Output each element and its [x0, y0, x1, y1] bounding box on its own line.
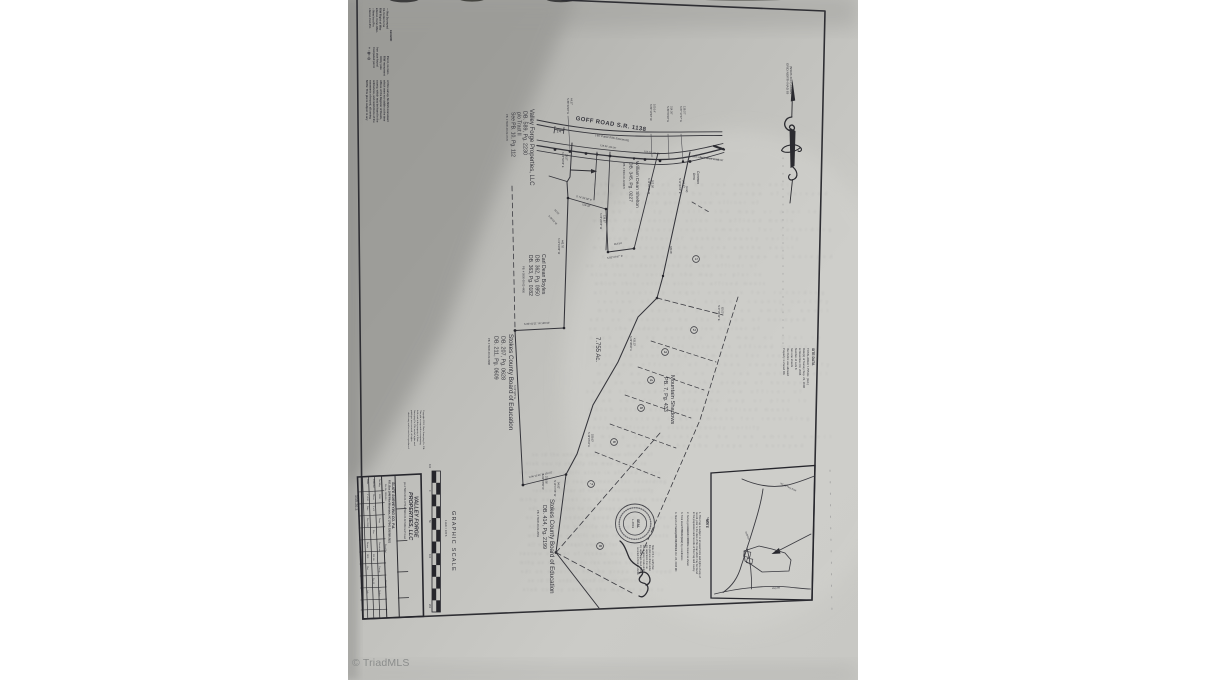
svg-text:P.O. Box 1648 Pilot Mountain,: P.O. Box 1648 Pilot Mountain, NC 27041 3…	[388, 480, 391, 544]
svg-text:of this survey. No NGS monumen: of this survey. No NGS monument	[386, 80, 390, 122]
svg-text:138.37': 138.37'	[683, 106, 687, 115]
svg-text:433.10': 433.10'	[633, 338, 636, 346]
svg-text:115-20-3: 115-20-3	[361, 479, 363, 488]
svg-text:my supervision from an: my supervision from an	[645, 545, 648, 569]
svg-text:CL Center Line: CL Center Line	[382, 8, 386, 28]
svg-text:PB. # 5900-00-02-2553: PB. # 5900-00-02-2553	[536, 510, 540, 538]
svg-text:GRID NORTH NAD 83: GRID NORTH NAD 83	[786, 63, 790, 95]
svg-text:LEGEND: LEGEND	[389, 30, 393, 41]
svg-text:Sauratown: Sauratown	[378, 542, 381, 553]
svg-text:94.92': 94.92'	[557, 482, 560, 489]
svg-text:Iron pipe found: Iron pipe found	[376, 47, 380, 67]
svg-text:S 87°17'07" E: S 87°17'07" E	[679, 106, 683, 122]
svg-text:100.14': 100.14'	[653, 104, 657, 113]
svg-text:579.67': 579.67'	[682, 180, 685, 189]
svg-text:DB. 363, Pg. 0182: DB. 363, Pg. 0182	[527, 255, 533, 296]
svg-text:202.06': 202.06'	[651, 180, 654, 189]
svg-text:mthg ae societ on he res emthe: mthg ae societ on he res emthe soeit	[520, 497, 671, 502]
svg-text:N 19°20'31" E: N 19°20'31" E	[587, 432, 590, 447]
svg-text:2008-114: 2008-114	[372, 479, 374, 488]
svg-text:1/15-20-3: 1/15-20-3	[354, 495, 358, 510]
svg-text:Copyright 2013, Slate Surveyin: Copyright 2013, Slate Surveying Co. P.A.	[422, 410, 425, 450]
svg-text:NOTE: This plat is subject to: NOTE: This plat is subject to any	[365, 80, 369, 121]
svg-text:oe rd the unders gned re iew o: oe rd the unders gned re iew officer of	[528, 578, 649, 583]
svg-text:Sheet: Sheet	[372, 494, 375, 500]
svg-text:Stokes County Board of Educati: Stokes County Board of Education	[507, 334, 514, 431]
svg-text:State of N.C. certify that: State of N.C. certify that	[651, 545, 654, 570]
svg-text:DB. 362, Pg. 0950: DB. 362, Pg. 0950	[534, 255, 540, 296]
svg-text:Property is Zoned RA: Property is Zoned RA	[782, 348, 786, 375]
svg-text:Hwy 89: Hwy 89	[772, 586, 781, 590]
svg-text:SEAL: SEAL	[636, 519, 640, 528]
svg-text:● Exist. Iron Pin: ● Exist. Iron Pin	[368, 8, 372, 29]
svg-text:field work is the property of: field work is the property of Slate	[416, 410, 419, 443]
svg-text:N 88°43'20" E: N 88°43'20" E	[566, 98, 570, 114]
svg-text:N 89°04'30" E: N 89°04'30" E	[666, 106, 670, 122]
svg-text:easements of record, all zonin: easements of record, all zoning	[369, 80, 373, 119]
svg-text:NC 89: NC 89	[706, 517, 709, 524]
svg-text:SITE DATA: SITE DATA	[811, 348, 815, 366]
svg-text:in the preparation and records: in the preparation and records of this m…	[692, 512, 695, 572]
svg-text:PB. 7, Pg. 433: PB. 7, Pg. 433	[662, 377, 668, 412]
svg-text:DB. 211, Pg. 0609: DB. 211, Pg. 0609	[493, 336, 499, 380]
svg-text:N 26°08'30" E: N 26°08'30" E	[629, 336, 632, 351]
svg-text:William Dean Shelton: William Dean Shelton	[634, 161, 640, 208]
svg-text:Valley Forge Properties, LLC: Valley Forge Properties, LLC	[528, 109, 534, 186]
svg-text:S 01°19'26" W: S 01°19'26" W	[557, 238, 560, 255]
svg-text:PB. # 5900-00-02-4456: PB. # 5900-00-02-4456	[522, 266, 526, 294]
svg-text:R/W Right of Way: R/W Right of Way	[379, 8, 383, 31]
svg-text:N 11°30'02" E: N 11°30'02" E	[678, 178, 681, 194]
svg-text:2- Survey precision 1 : 10000: 2- Survey precision 1 : 10000+ closure a…	[686, 512, 689, 567]
svg-text:100: 100	[428, 464, 431, 469]
svg-text:Deed Ref.: Deed Ref.	[384, 544, 386, 554]
svg-text:3- Total area 7.755 Ac (total: 3- Total area 7.755 Ac (total) by coordi…	[680, 512, 683, 561]
svg-text:Dec 2012: Dec 2012	[366, 518, 368, 528]
svg-text:DB. 345, Pg. 0227: DB. 345, Pg. 0227	[628, 162, 634, 202]
svg-text:PB. # 5900-00-02-0776: PB. # 5900-00-02-0776	[505, 114, 509, 142]
svg-text:Pg. 42: Pg. 42	[372, 578, 374, 585]
svg-text:1 of 1: 1 of 1	[372, 506, 374, 512]
svg-text:County: County	[378, 566, 381, 574]
svg-text:S 89°10'30" W: S 89°10'30" W	[649, 104, 653, 121]
svg-text:ordinances, and restrictions o: ordinances, and restrictions of the	[372, 80, 376, 123]
svg-text:■ Exist. Conc. Mon.: ■ Exist. Conc. Mon.	[375, 8, 379, 33]
svg-text:443.76': 443.76'	[561, 240, 564, 249]
svg-text:DB. 207, Pg. 0628: DB. 207, Pg. 0628	[500, 336, 506, 380]
svg-text:privileges are reserved, all r: privileges are reserved, all rights	[410, 410, 413, 442]
svg-text:200: 200	[428, 604, 431, 609]
svg-text:Utility pole: Utility pole	[379, 56, 383, 70]
svg-text:county, which may be found in: county, which may be found in the	[376, 80, 380, 123]
svg-text:Area: Area	[692, 173, 696, 180]
svg-text:L-4819: L-4819	[631, 519, 635, 529]
svg-text:SLATE SURVEYING CO. P.A.: SLATE SURVEYING CO. P.A.	[391, 482, 395, 529]
svg-text:oe rd the unders gned re iew o: oe rd the unders gned re iew officer of	[532, 452, 653, 457]
svg-text:7.755 Ac.: 7.755 Ac.	[594, 337, 600, 362]
svg-text:offices of the Register of Dee: offices of the Register of Deeds,	[379, 80, 383, 120]
svg-text:p/o # 5900-00-02-0776 & 5900-0: p/o # 5900-00-02-0776 & 5900-00-02-5136 …	[403, 482, 406, 540]
svg-text:+ ○▮•○◎: + ○▮•○◎	[367, 47, 371, 60]
svg-text:F.B. 88: F.B. 88	[372, 554, 374, 561]
svg-text:DB. 414, Pg. 2199: DB. 414, Pg. 2199	[541, 505, 547, 549]
svg-text:Carl Dean Boyles: Carl Dean Boyles	[540, 254, 546, 295]
svg-text:305.08': 305.08'	[669, 246, 672, 254]
svg-text:○ New Iron Pin: ○ New Iron Pin	[372, 8, 376, 27]
svg-text:62.00': 62.00'	[721, 307, 724, 314]
svg-text:314.30': 314.30'	[670, 106, 674, 115]
svg-text:review officer of stokes count: review officer of stokes county certify	[533, 488, 654, 493]
svg-text:44.37': 44.37'	[570, 98, 574, 105]
svg-text:N 13°07'25" W: N 13°07'25" W	[553, 480, 556, 497]
svg-text:136.87': 136.87'	[603, 215, 606, 224]
svg-text:1 inch = 100 ft.: 1 inch = 100 ft.	[444, 520, 448, 537]
svg-text:Stokes: Stokes	[378, 590, 381, 596]
svg-text:183.60': 183.60'	[591, 434, 594, 442]
svg-text:R/W monument: R/W monument	[383, 56, 387, 76]
svg-text:N 83°45'55" W: N 83°45'55" W	[541, 474, 544, 490]
svg-text:See PB. 10, Pg. 112: See PB. 10, Pg. 112	[510, 112, 516, 157]
svg-text:Scale: Scale	[366, 479, 368, 485]
svg-text:which may not be used or repro: which may not be used or reproduced	[407, 412, 410, 449]
svg-text:N 47°26'42" E: N 47°26'42" E	[717, 305, 720, 321]
svg-text:Point, no mon.: Point, no mon.	[386, 56, 390, 75]
svg-text:Surveying Co. P.A. and all rig: Surveying Co. P.A. and all rights and	[413, 410, 416, 446]
svg-text:PB. # 5900-00-02-0988: PB. # 5900-00-02-0988	[487, 338, 491, 366]
svg-text:S 13°16'40" W: S 13°16'40" W	[647, 178, 650, 195]
svg-text:Rev.: Rev.	[372, 530, 374, 535]
svg-text:14: 14	[557, 128, 562, 133]
svg-text:this plat was drawn under: this plat was drawn under	[648, 545, 651, 571]
svg-text:which were not visible at the: which were not visible at the time	[383, 80, 387, 122]
svg-text:1"=100': 1"=100'	[366, 494, 368, 502]
svg-text:— Not Surveyed: — Not Surveyed	[386, 8, 390, 29]
svg-text:mthg ae societ on he res emthe: mthg ae societ on he res emthe soeit	[520, 560, 641, 565]
svg-text:Computed point: Computed point	[372, 47, 376, 68]
svg-text:PB. # 5900-00-02-8470: PB. # 5900-00-02-8470	[622, 163, 625, 190]
svg-text:Tax Map: Tax Map	[378, 479, 380, 488]
svg-text:4- Sketch of Survey DB. 53, P: 4- Sketch of Survey DB. 53, PB 9 & Oct. …	[674, 512, 677, 572]
svg-text:my supervision deed desc.: my supervision deed desc.	[639, 545, 642, 573]
svg-text:actual survey made under: actual survey made under	[642, 545, 645, 572]
svg-text:S 05°52'06" E: S 05°52'06" E	[561, 152, 564, 168]
svg-text:GRAPHIC SCALE: GRAPHIC SCALE	[450, 511, 456, 572]
svg-text:Mountain Shadows: Mountain Shadows	[669, 375, 675, 424]
svg-text:recorded in Book as shown: recorded in Book as shown	[636, 547, 639, 575]
svg-text:Stokes County Board of Educati: Stokes County Board of Education	[548, 499, 555, 594]
svg-text:Twsp: Twsp	[378, 518, 380, 524]
svg-text:Drawn: Drawn	[366, 542, 369, 549]
svg-text:S 05°23'05" W: S 05°23'05" W	[599, 213, 602, 230]
svg-text:DB 589: DB 589	[384, 580, 386, 588]
svg-text:29.57': 29.57'	[565, 154, 568, 161]
svg-text:PROPERTIES, LLC: PROPERTIES, LLC	[407, 492, 413, 540]
svg-text:100: 100	[428, 554, 431, 559]
svg-text:This plat or map and accompany: This plat or map and accompanying	[419, 410, 422, 445]
svg-text:SDS: SDS	[366, 554, 368, 559]
svg-text:(total): (total)	[685, 186, 688, 193]
svg-text:File No. 2008-114: File No. 2008-114	[384, 484, 386, 501]
svg-text:202.06': 202.06'	[545, 476, 548, 484]
